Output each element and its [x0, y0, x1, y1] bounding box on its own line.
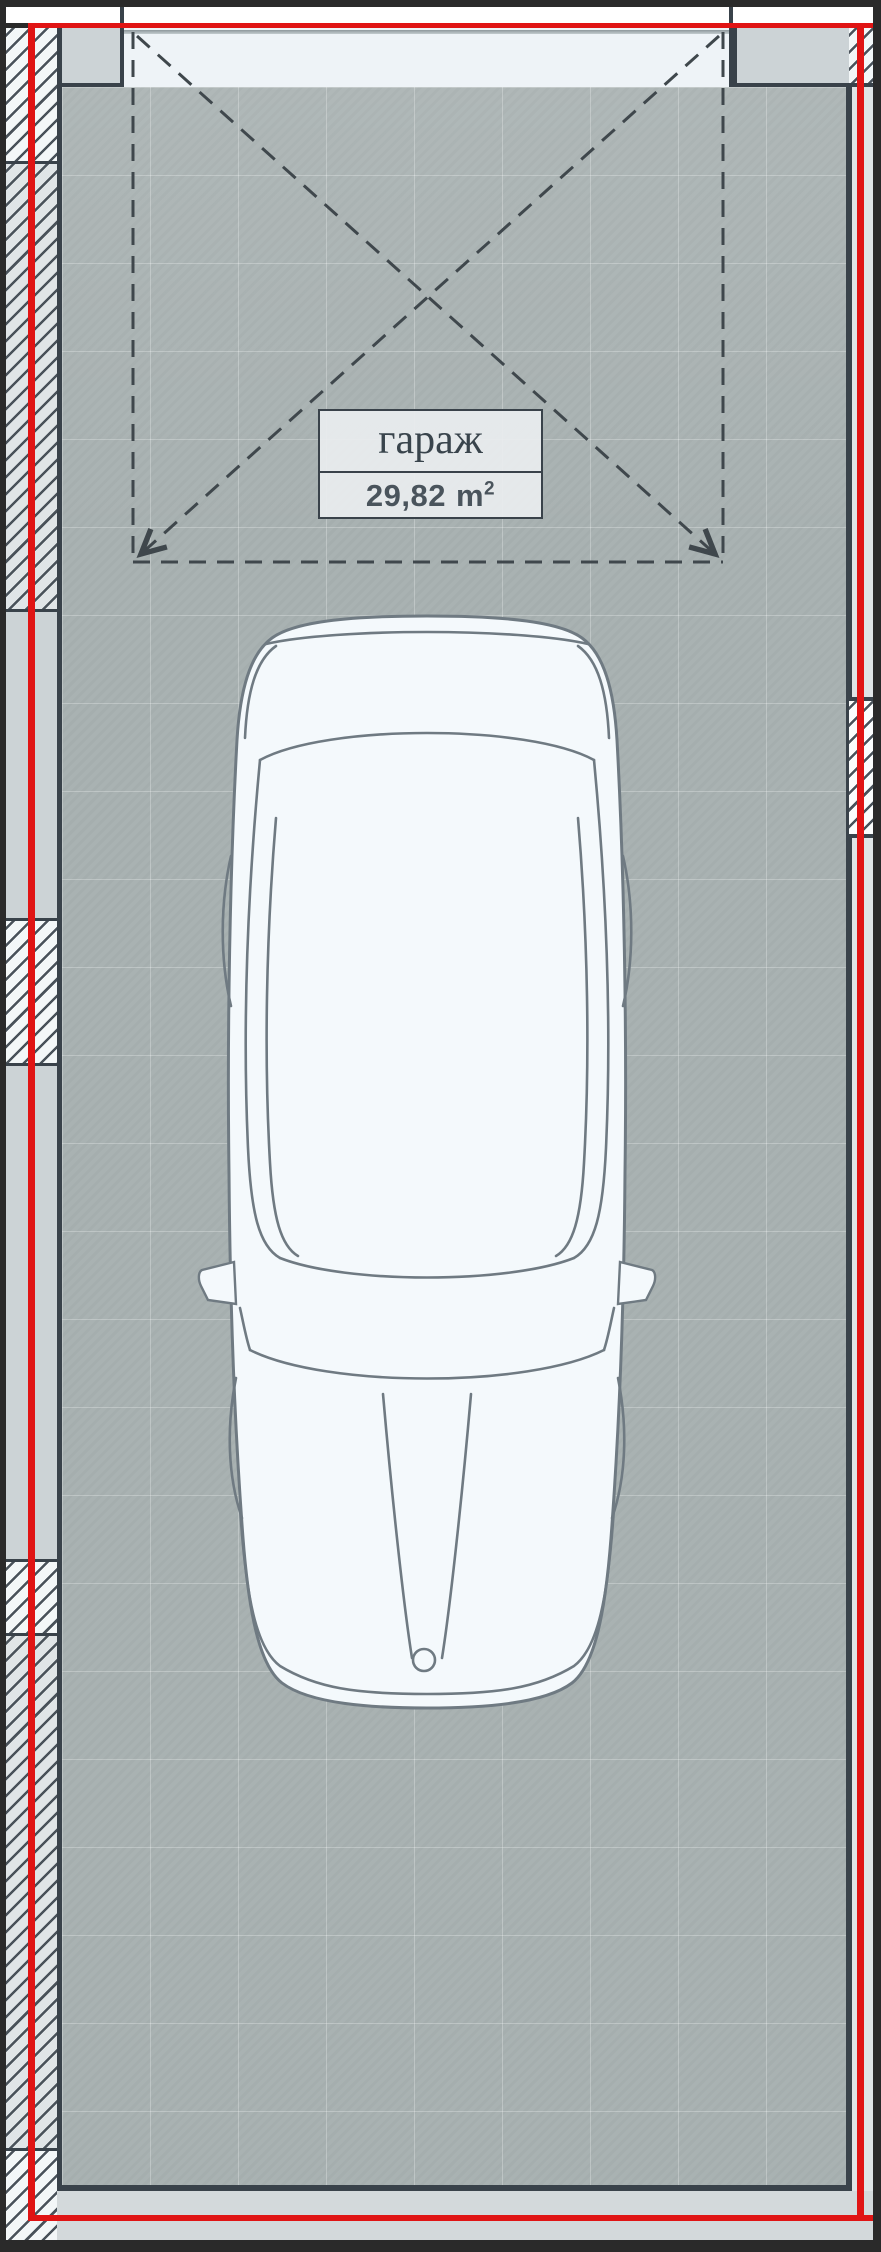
room-area-value: 29,82	[366, 480, 446, 511]
car-body-group	[199, 616, 655, 1708]
room-label-box: гараж 29,82 m2	[318, 409, 543, 519]
mirror-right	[618, 1262, 655, 1304]
red-perimeter-line-top	[28, 23, 873, 28]
top-white-band	[6, 7, 873, 23]
right-wall-inner-edge	[846, 87, 852, 2191]
room-name: гараж	[320, 411, 541, 473]
room-area-unit: m2	[456, 480, 495, 511]
car-body-outline	[228, 616, 625, 1708]
garage-floor-plan: гараж 29,82 m2	[0, 0, 881, 2252]
pier-left	[62, 28, 120, 87]
left-wall-inner-edge	[57, 28, 62, 2185]
room-area: 29,82 m2	[320, 473, 541, 517]
red-perimeter-line-left	[28, 23, 35, 2221]
door-jamb-left	[120, 7, 124, 87]
mirror-left	[199, 1262, 236, 1304]
pier-right	[733, 28, 849, 87]
car-top-view	[196, 608, 658, 1712]
red-perimeter-line-right	[857, 23, 864, 2221]
garage-door-line	[124, 30, 729, 34]
garage-door-threshold	[124, 28, 729, 87]
red-perimeter-line-bottom	[28, 2215, 873, 2221]
